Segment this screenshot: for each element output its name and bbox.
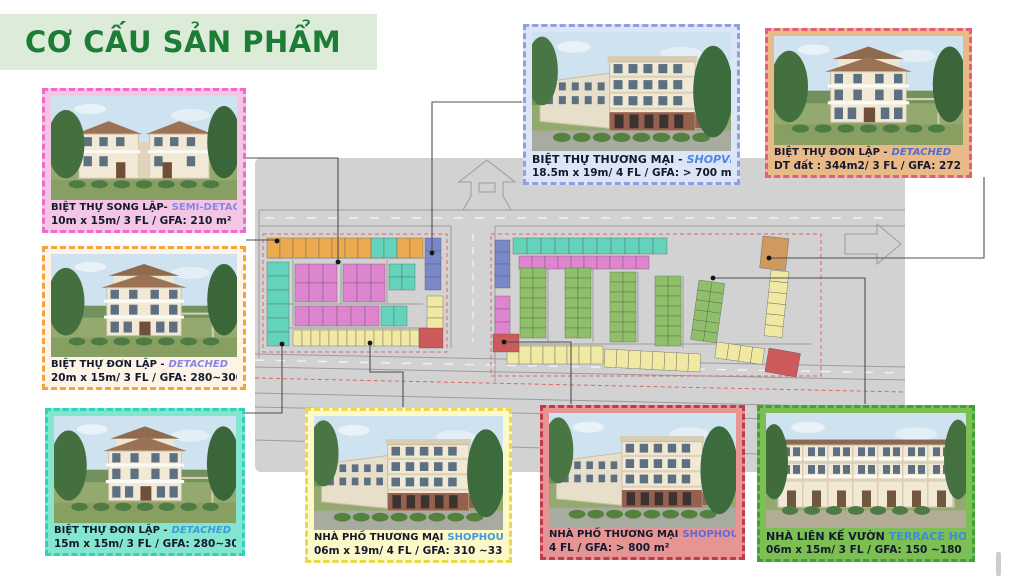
- product-specs: 20m x 15m/ 3 FL / GFA: 280~300 m²: [51, 372, 237, 385]
- product-name-en: DETACHED: [172, 525, 231, 536]
- house-rendering: [54, 416, 236, 523]
- card-semi-detached: BIỆT THỰ SONG LẬP-SEMI-DETACHED 10m x 15…: [42, 88, 246, 233]
- card-caption: BIỆT THỰ ĐƠN LẬP -DETACHED DT đất : 344m…: [774, 145, 963, 173]
- card-shophouse-corner: NHÀ PHỐ THƯƠNG MẠISHOPHOUSE 4 FL / GFA: …: [540, 405, 745, 560]
- card-caption: BIỆT THỰ THƯƠNG MẠI -SHOPVILLA 18.5m x 1…: [532, 151, 731, 180]
- product-name-vi: NHÀ LIÊN KẾ VƯỜN: [766, 530, 885, 543]
- product-specs: 4 FL / GFA: > 800 m²: [549, 542, 736, 555]
- product-name-vi: NHÀ PHỐ THƯƠNG MẠI: [314, 532, 443, 543]
- product-specs: 15m x 15m/ 3 FL / GFA: 280~300 m²: [54, 538, 236, 551]
- house-rendering: [549, 413, 736, 527]
- product-name-vi: BIỆT THỰ ĐƠN LẬP -: [51, 359, 165, 370]
- product-name-vi: BIỆT THỰ ĐƠN LẬP -: [54, 525, 168, 536]
- product-name-vi: BIỆT THỰ SONG LẬP-: [51, 202, 168, 213]
- card-caption: NHÀ PHỐ THƯƠNG MẠISHOPHOUSE 06m x 19m/ 4…: [314, 530, 503, 558]
- card-caption: BIỆT THỰ ĐƠN LẬP -DETACHED 20m x 15m/ 3 …: [51, 357, 237, 385]
- house-rendering: [774, 36, 963, 145]
- house-rendering: [51, 254, 237, 357]
- scrollbar-thumb[interactable]: [996, 552, 1001, 576]
- product-name-en: SHOPHOUSE: [682, 529, 736, 540]
- product-name-vi: BIỆT THỰ THƯƠNG MẠI -: [532, 153, 683, 166]
- product-specs: DT đất : 344m2/ 3 FL / GFA: 272 m²: [774, 160, 963, 173]
- product-name-en: SEMI-DETACHED: [172, 202, 237, 213]
- card-detached-344: BIỆT THỰ ĐƠN LẬP -DETACHED DT đất : 344m…: [765, 28, 972, 178]
- product-specs: 18.5m x 19m/ 4 FL / GFA: > 700 m²: [532, 167, 731, 180]
- page-title: CƠ CẤU SẢN PHẨM: [25, 14, 341, 70]
- house-rendering: [766, 413, 966, 528]
- product-name-en: DETACHED: [169, 359, 228, 370]
- product-name-en: TERRACE HOUSE: [889, 530, 966, 543]
- house-rendering: [532, 32, 731, 151]
- product-name-en: SHOPVILLA: [687, 153, 731, 166]
- card-caption: NHÀ PHỐ THƯƠNG MẠISHOPHOUSE 4 FL / GFA: …: [549, 527, 736, 555]
- card-caption: NHÀ LIÊN KẾ VƯỜNTERRACE HOUSE 06m x 15m/…: [766, 528, 966, 557]
- product-name-en: DETACHED: [892, 147, 951, 158]
- product-specs: 06m x 15m/ 3 FL / GFA: 150 ~180 m²: [766, 544, 966, 557]
- card-detached-15x15: BIỆT THỰ ĐƠN LẬP -DETACHED 15m x 15m/ 3 …: [45, 408, 245, 556]
- product-name-vi: NHÀ PHỐ THƯƠNG MẠI: [549, 529, 678, 540]
- product-name-en: SHOPHOUSE: [447, 532, 503, 543]
- slide: CƠ CẤU SẢN PHẨM: [0, 0, 1024, 576]
- card-shopvilla: BIỆT THỰ THƯƠNG MẠI -SHOPVILLA 18.5m x 1…: [523, 24, 740, 185]
- house-rendering: [51, 96, 237, 200]
- product-specs: 10m x 15m/ 3 FL / GFA: 210 m²: [51, 215, 237, 228]
- card-shophouse-6x19: NHÀ PHỐ THƯƠNG MẠISHOPHOUSE 06m x 19m/ 4…: [305, 408, 512, 563]
- card-terrace-house: NHÀ LIÊN KẾ VƯỜNTERRACE HOUSE 06m x 15m/…: [757, 405, 975, 562]
- card-caption: BIỆT THỰ ĐƠN LẬP -DETACHED 15m x 15m/ 3 …: [54, 523, 236, 551]
- card-detached-20x15: BIỆT THỰ ĐƠN LẬP -DETACHED 20m x 15m/ 3 …: [42, 246, 246, 390]
- product-specs: 06m x 19m/ 4 FL / GFA: 310 ~330m²: [314, 545, 503, 558]
- product-name-vi: BIỆT THỰ ĐƠN LẬP -: [774, 147, 888, 158]
- house-rendering: [314, 416, 503, 530]
- title-banner: CƠ CẤU SẢN PHẨM: [0, 14, 377, 70]
- card-caption: BIỆT THỰ SONG LẬP-SEMI-DETACHED 10m x 15…: [51, 200, 237, 228]
